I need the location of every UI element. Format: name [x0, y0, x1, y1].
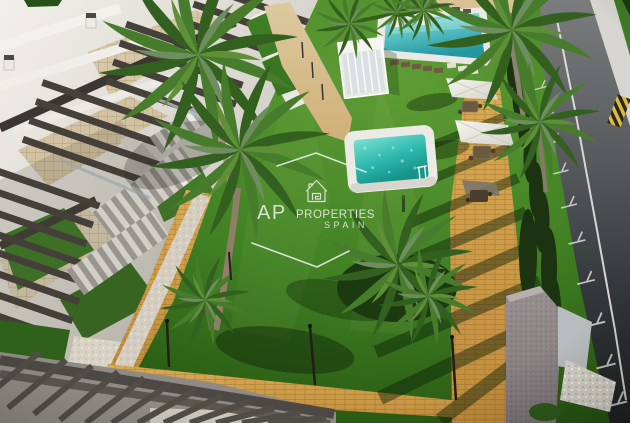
scene-svg: AP PROPERTIES SPAIN — [0, 0, 630, 423]
brand-initials: AP — [257, 202, 287, 224]
aerial-photo: AP PROPERTIES SPAIN — [0, 0, 630, 423]
brand-region: SPAIN — [324, 220, 368, 230]
